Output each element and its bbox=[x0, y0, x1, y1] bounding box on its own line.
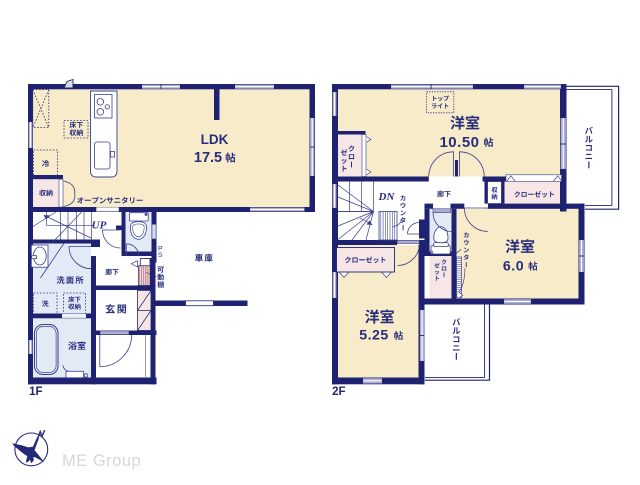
svg-text:6.0: 6.0 bbox=[503, 258, 524, 274]
svg-text:5.25: 5.25 bbox=[359, 328, 389, 344]
svg-text:1F: 1F bbox=[29, 386, 42, 398]
svg-text:S: S bbox=[158, 252, 163, 259]
svg-text:ME Group: ME Group bbox=[62, 452, 141, 470]
svg-text:LDK: LDK bbox=[201, 132, 229, 147]
svg-text:DN: DN bbox=[378, 191, 396, 203]
svg-text:10.50: 10.50 bbox=[439, 134, 479, 151]
svg-text:2F: 2F bbox=[332, 386, 345, 398]
svg-text:17.5: 17.5 bbox=[194, 150, 222, 166]
